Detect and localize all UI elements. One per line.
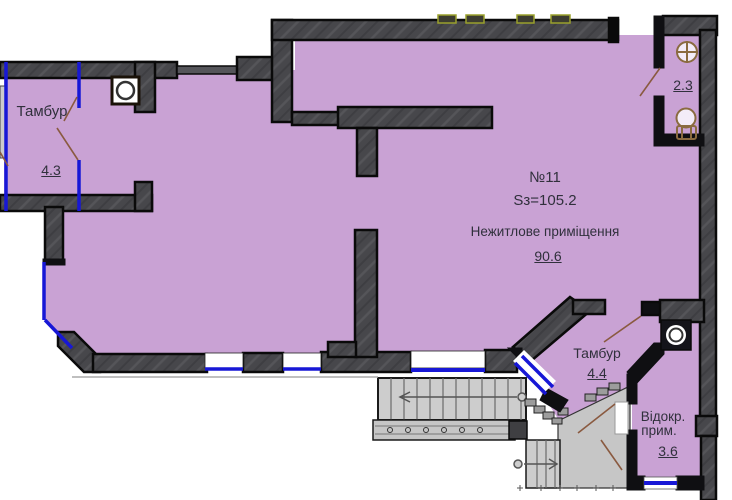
entry-door-gap xyxy=(615,402,628,434)
area-label-tambur-bottom: 4.4 xyxy=(576,366,618,381)
wall-cap xyxy=(609,18,618,42)
area-label-tambur-top: 4.3 xyxy=(28,163,74,178)
stair-flight-upper xyxy=(378,378,526,420)
area-label-detached: 3.6 xyxy=(646,444,690,459)
wall-t44-left xyxy=(573,300,605,314)
vent-block xyxy=(551,15,570,23)
room-type-label: Нежитлове приміщення xyxy=(447,225,643,239)
wall-t-horizontal xyxy=(338,107,492,128)
wall-bottom-pier xyxy=(243,353,283,372)
wall-pier-cap xyxy=(43,259,65,265)
wall-detached-bottom-b xyxy=(676,476,704,490)
floor-plan: Тамбур 4.3 №11 Sз=105.2 Нежитлове приміщ… xyxy=(0,0,732,500)
vent-block xyxy=(517,15,534,23)
unit-number-label: №11 xyxy=(500,170,590,186)
window-detached xyxy=(644,477,677,489)
wall-inner-foot xyxy=(328,342,356,357)
wall-column-block xyxy=(660,300,704,322)
shaft-icon xyxy=(112,77,139,104)
wall-alcove-bottom xyxy=(292,112,342,125)
wall-inner-vertical xyxy=(355,230,377,357)
area-label-sanitary: 2.3 xyxy=(662,78,704,93)
column-icon xyxy=(661,320,691,350)
room-label-detached-2: прим. xyxy=(628,424,690,438)
room-label-tambur-top: Тамбур xyxy=(8,104,76,120)
wall-detached-bottom-a xyxy=(627,476,645,490)
vent-block xyxy=(438,15,456,23)
floor-plan-drawing xyxy=(0,0,732,500)
wall-bath-stub-top xyxy=(654,16,664,68)
vent-block xyxy=(466,15,484,23)
wall-detached-left-a xyxy=(627,374,637,404)
room-label-tambur-bottom: Тамбур xyxy=(562,346,632,361)
total-area-label: Sз=105.2 xyxy=(492,193,598,209)
wall-step-block xyxy=(135,182,152,211)
wall-right-step xyxy=(696,416,717,436)
wall-bottom-a xyxy=(93,354,207,372)
stairs-area xyxy=(373,378,630,491)
wall-tambur-bottom xyxy=(0,195,152,211)
wall-left-pier xyxy=(45,207,63,263)
wall-thin xyxy=(177,66,237,74)
wall-bottom-c xyxy=(485,350,517,372)
wall-t-stem xyxy=(357,128,377,176)
stair-post xyxy=(509,421,527,439)
sink-icon xyxy=(676,41,698,63)
area-label-main: 90.6 xyxy=(518,249,578,264)
